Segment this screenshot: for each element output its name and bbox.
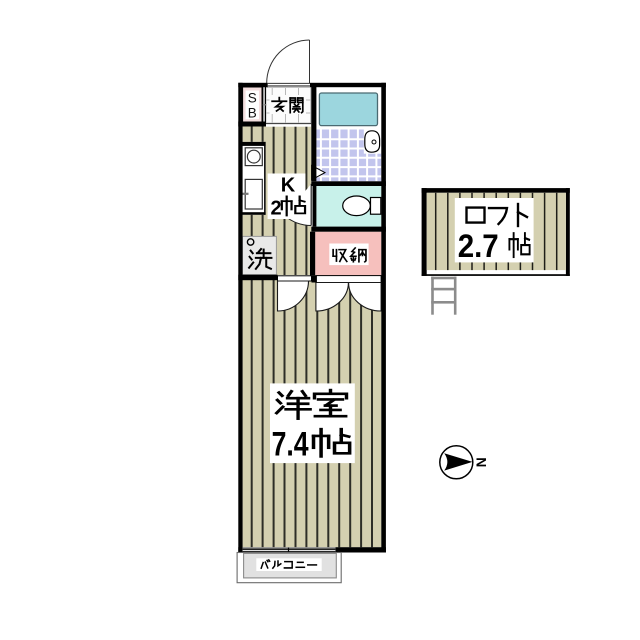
svg-text:7.4: 7.4 xyxy=(272,426,309,464)
svg-text:N: N xyxy=(473,457,489,467)
svg-text:S: S xyxy=(248,91,257,106)
svg-text:B: B xyxy=(248,106,257,121)
svg-text:K: K xyxy=(281,175,296,197)
svg-text:2.7: 2.7 xyxy=(458,228,499,264)
svg-text:2: 2 xyxy=(270,198,281,220)
